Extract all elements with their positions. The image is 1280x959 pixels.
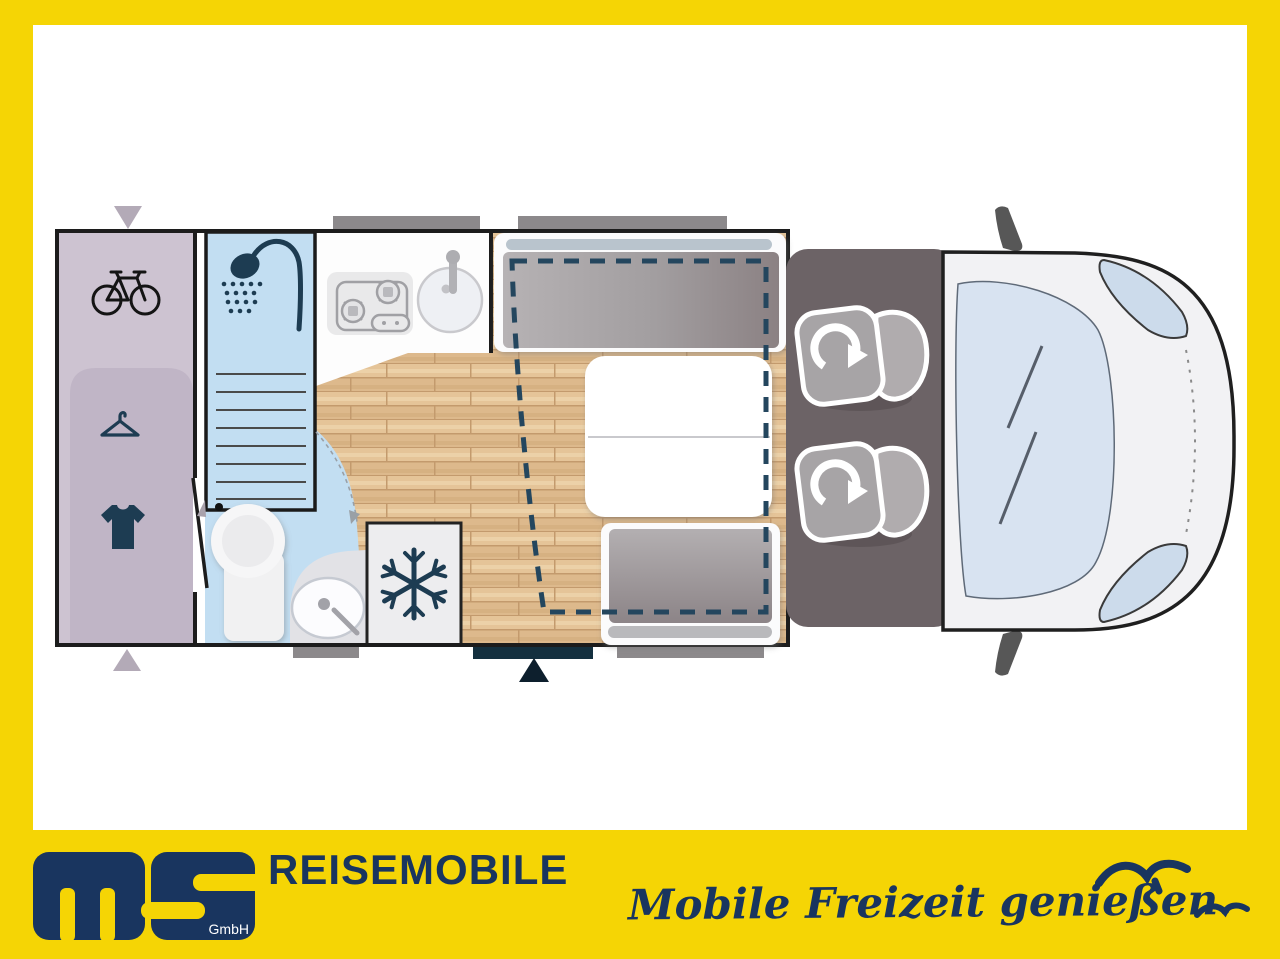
- ms-gmbh-logo: GmbH: [33, 850, 263, 944]
- floorplan-drawing: [0, 0, 1280, 959]
- stove-icon: [327, 272, 413, 335]
- table: [585, 356, 772, 517]
- vehicle-front: [943, 206, 1234, 675]
- seagull-icon-large: [1099, 864, 1187, 883]
- windshield: [956, 282, 1114, 599]
- logo-s-block: GmbH: [141, 852, 263, 940]
- entry-marker: [519, 658, 549, 682]
- fridge: [367, 523, 461, 645]
- side-mirror-top: [995, 206, 1022, 251]
- rear-bench-seat: [601, 523, 780, 645]
- cab: [786, 249, 956, 627]
- logo-m-block: [33, 852, 145, 942]
- rear-bottom-marker: [113, 649, 141, 671]
- rear-top-marker: [114, 206, 142, 229]
- seagulls: [1095, 853, 1255, 938]
- division-title: REISEMOBILE: [268, 846, 568, 894]
- shower-door-hinge: [215, 503, 223, 511]
- entry-step: [473, 645, 593, 659]
- front-bench-seat: [494, 233, 786, 352]
- seagull-tail: [1155, 881, 1159, 891]
- side-mirror-bottom: [995, 631, 1022, 676]
- swivel-seat-left: [795, 305, 927, 411]
- logo-subtitle: GmbH: [209, 921, 249, 937]
- rear-garage: [57, 231, 193, 645]
- swivel-seat-right: [795, 441, 927, 547]
- seagull-icon-small: [1197, 906, 1247, 915]
